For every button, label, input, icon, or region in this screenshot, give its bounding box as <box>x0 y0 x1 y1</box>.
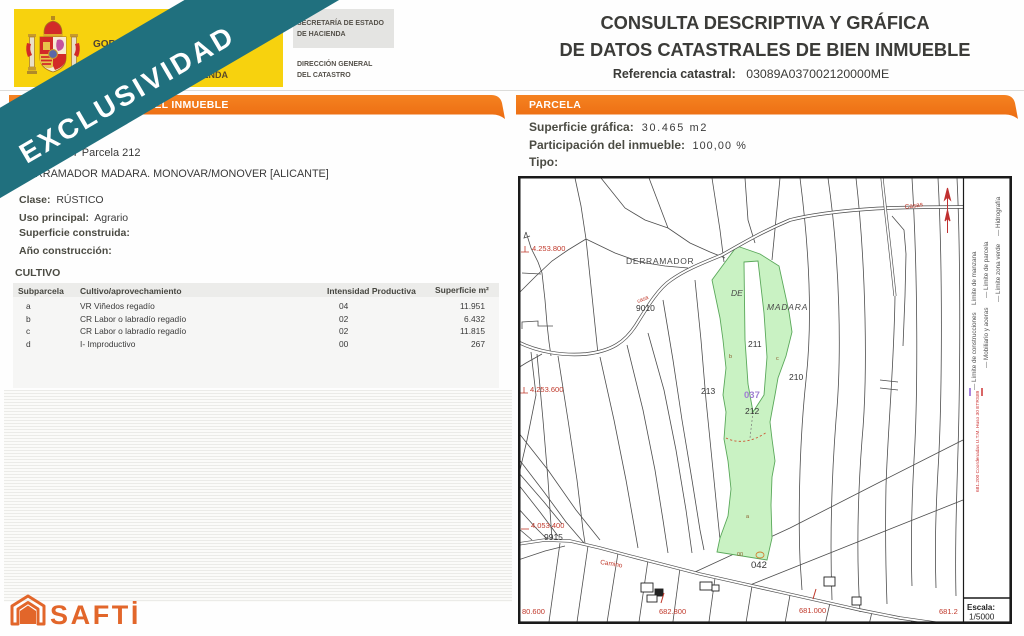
svg-text:— Mobiliario y aceras: — Mobiliario y aceras <box>983 307 990 368</box>
svg-text:DERRAMADOR: DERRAMADOR <box>626 256 694 266</box>
svg-text:681.000: 681.000 <box>799 606 826 615</box>
svg-text:9915: 9915 <box>544 532 563 542</box>
svg-text:210: 210 <box>789 372 803 382</box>
svg-text:212: 212 <box>745 406 759 416</box>
svg-text:Límite de manzana: Límite de manzana <box>971 251 978 305</box>
svg-text:— Límite de construcciones: — Límite de construcciones <box>971 312 978 390</box>
svg-text:4.253.800: 4.253.800 <box>532 244 565 253</box>
svg-text:b: b <box>729 354 732 360</box>
svg-text:— Límite de parcela: — Límite de parcela <box>983 241 990 298</box>
svg-text:00: 00 <box>737 552 743 558</box>
svg-text:— Hidrografía: — Hidrografía <box>995 196 1002 236</box>
svg-text:681.200 Coordenadas U.T.M. Hus: 681.200 Coordenadas U.T.M. Huso 30 ETRS8… <box>975 390 981 492</box>
svg-text:c: c <box>776 356 779 362</box>
svg-text:4.053.400: 4.053.400 <box>531 521 564 530</box>
svg-text:037: 037 <box>744 390 760 401</box>
svg-text:— Límite zona verde: — Límite zona verde <box>995 243 1002 302</box>
svg-text:80.600: 80.600 <box>522 607 545 616</box>
svg-text:MADARA: MADARA <box>767 302 808 312</box>
svg-text:DE: DE <box>731 288 743 298</box>
svg-text:042: 042 <box>751 560 767 571</box>
svg-text:SAFTİ: SAFTİ <box>50 600 141 627</box>
svg-text:213: 213 <box>701 386 715 396</box>
svg-text:211: 211 <box>748 339 762 349</box>
svg-text:682.800: 682.800 <box>659 607 686 616</box>
svg-text:1/5000: 1/5000 <box>969 612 995 622</box>
svg-text:4.253.600: 4.253.600 <box>530 385 563 394</box>
svg-text:681.2: 681.2 <box>939 607 958 616</box>
svg-text:9010: 9010 <box>636 303 655 313</box>
